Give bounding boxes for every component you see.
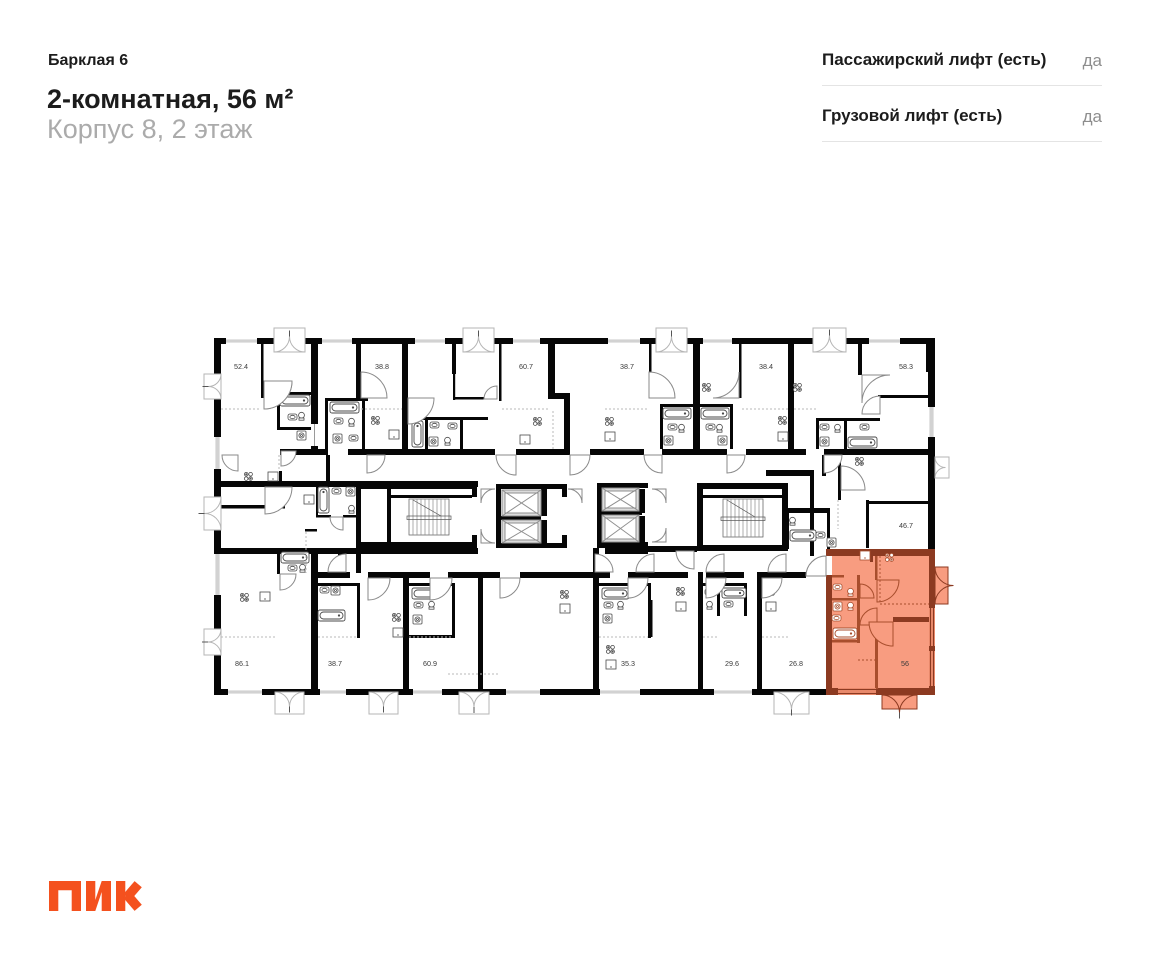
svg-text:86.1: 86.1 [235,659,249,668]
svg-text:52.4: 52.4 [234,362,248,371]
svg-text:38.4: 38.4 [759,362,773,371]
svg-text:26.8: 26.8 [789,659,803,668]
svg-text:29.6: 29.6 [725,659,739,668]
svg-text:38.7: 38.7 [620,362,634,371]
svg-text:56: 56 [901,659,909,668]
svg-text:58.3: 58.3 [899,362,913,371]
svg-text:60.9: 60.9 [423,659,437,668]
svg-text:35.3: 35.3 [621,659,635,668]
svg-text:38.8: 38.8 [375,362,389,371]
svg-text:46.7: 46.7 [899,521,913,530]
svg-text:60.7: 60.7 [519,362,533,371]
svg-text:38.7: 38.7 [328,659,342,668]
